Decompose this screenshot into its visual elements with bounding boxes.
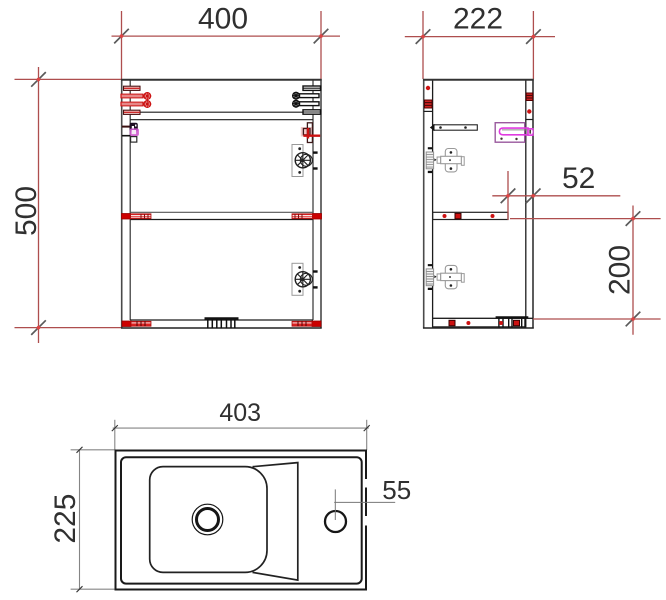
svg-text:52: 52 — [562, 162, 595, 195]
svg-text:400: 400 — [198, 3, 248, 36]
svg-text:200: 200 — [604, 245, 637, 295]
svg-text:403: 403 — [219, 399, 261, 427]
svg-text:225: 225 — [49, 494, 82, 544]
svg-text:500: 500 — [10, 186, 43, 236]
svg-text:222: 222 — [453, 3, 503, 36]
svg-text:55: 55 — [382, 475, 411, 505]
